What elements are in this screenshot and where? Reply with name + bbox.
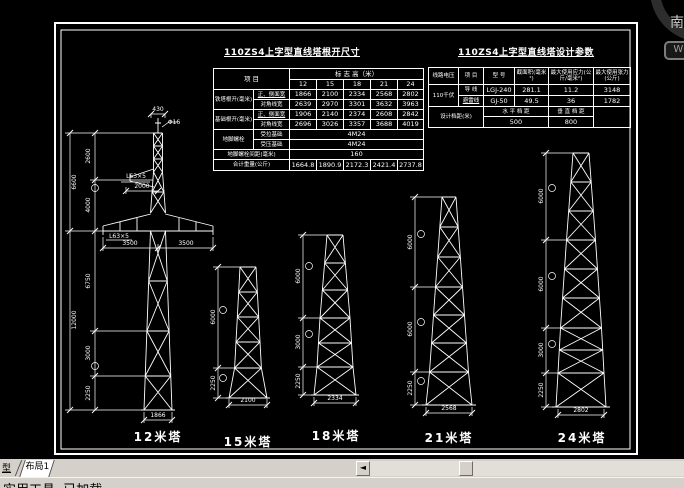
cell: 4M24 <box>290 140 424 150</box>
cell: 281.1 <box>515 85 549 96</box>
dim-label: 2802 <box>573 408 588 414</box>
cell: 2802 <box>398 90 424 100</box>
cell: 2696 <box>290 120 317 130</box>
dim-label: 1866 <box>150 413 165 419</box>
scrollbar-left-arrow-button[interactable]: ◄ <box>356 461 370 476</box>
command-line-area[interactable]: 实用工具. 已加载 <box>0 477 684 488</box>
tower-label-18m: 18米塔 <box>312 427 361 444</box>
cell: 110千伏 <box>429 85 459 107</box>
dim-label: 6000 <box>408 234 414 249</box>
dim-label: 6000 <box>539 188 545 203</box>
cell: 21 <box>371 80 398 90</box>
cell: 2568 <box>371 90 398 100</box>
dim-label: 6000 <box>408 321 414 336</box>
cell: 项 目 <box>459 68 484 85</box>
cell: 160 <box>290 150 424 160</box>
layout-tab-bar: 型 布局1 ◄ <box>0 459 684 477</box>
tower-21m <box>422 197 476 405</box>
cell: 15 <box>317 80 344 90</box>
viewcube-south-label[interactable]: 南 <box>670 12 684 32</box>
cell: 截面积(毫米²) <box>515 68 549 85</box>
dim-label: 6750 <box>86 273 92 288</box>
cell: 2172.3 <box>344 160 371 171</box>
dim-label: 6000 <box>296 268 302 283</box>
dim-label: 6000 <box>211 309 217 324</box>
tower-label-15m: 15米塔 <box>224 433 273 450</box>
tower-15m <box>226 267 270 398</box>
autocad-viewport: 110ZS4上字型直线塔根开尺寸 110ZS4上字型直线塔设计参数 项 目 标 … <box>0 0 684 488</box>
tower-21m-dim-lines <box>410 197 472 416</box>
dim-label: 3500 <box>178 241 193 247</box>
cell: GJ-50 <box>484 96 515 107</box>
cell: 3301 <box>344 100 371 110</box>
tower-12m <box>103 118 213 410</box>
horizontal-scrollbar-track[interactable] <box>370 461 684 476</box>
cell: 1890.9 <box>317 160 344 171</box>
cell: 对角线宽 <box>254 120 290 130</box>
dim-label: 4000 <box>86 197 92 212</box>
tower-24m <box>552 153 610 407</box>
cell: 2374 <box>344 110 371 120</box>
cell: 导 线 <box>459 85 484 96</box>
cell: 基础根开(毫米) <box>214 110 254 130</box>
cell: 24 <box>398 80 424 90</box>
tower-label-21m: 21米塔 <box>425 429 474 446</box>
cell: 11.2 <box>549 85 594 96</box>
cell: 3026 <box>317 120 344 130</box>
dim-label: 6000 <box>539 276 545 291</box>
cell: 受压基础 <box>254 140 290 150</box>
cell: 36 <box>549 96 594 107</box>
cell: 地脚螺栓 <box>214 130 254 150</box>
cell: 2100 <box>317 90 344 100</box>
cell: 避雷线 <box>459 96 484 107</box>
cell: 1906 <box>290 110 317 120</box>
cell: 线路电压 <box>429 68 459 85</box>
cell: 正、侧面宽 <box>254 110 290 120</box>
cell: 垂 直 档 距 <box>549 107 594 117</box>
cell: 地脚螺栓间距(毫米) <box>214 150 290 160</box>
dim-label: 3500 <box>122 241 137 247</box>
tower-label-24m: 24米塔 <box>558 429 607 446</box>
dim-label: Φ16 <box>168 120 180 126</box>
wcs-button[interactable]: WCS <box>664 41 684 60</box>
tab-model-partial[interactable]: 型 <box>2 461 11 474</box>
cell: 2737.8 <box>398 160 424 171</box>
dim-label: 12000 <box>72 310 78 329</box>
dim-label: 2100 <box>240 398 255 404</box>
dim-label: L63×5 <box>126 174 146 180</box>
root-opening-table-title: 110ZS4上字型直线塔根开尺寸 <box>224 45 360 58</box>
cell: 18 <box>344 80 371 90</box>
cell: 500 <box>484 117 549 128</box>
root-opening-table: 项 目 标 志 高（米） 12 15 18 21 24 铁塔根开(毫米) 正、侧… <box>213 68 424 171</box>
cell: 合计重量(公斤) <box>214 160 290 171</box>
cell: 4M24 <box>290 130 424 140</box>
dim-label: 6600 <box>72 174 78 189</box>
cell: 3148 <box>594 85 631 96</box>
cell: 对角线宽 <box>254 100 290 110</box>
cell: LGJ-240 <box>484 85 515 96</box>
dim-label: 3000 <box>539 342 545 357</box>
dim-label: 2250 <box>211 375 217 390</box>
cell: 水 平 档 距 <box>484 107 549 117</box>
cell: 3357 <box>344 120 371 130</box>
cell: 设计档距(米) <box>429 107 484 128</box>
cell: 1866 <box>290 90 317 100</box>
tab-layout1[interactable]: 布局1 <box>19 460 55 477</box>
dim-label: 2600 <box>86 148 92 163</box>
cell: 最大使用应力(公斤/毫米²) <box>549 68 594 85</box>
dim-label: 430 <box>152 107 163 113</box>
cell: 12 <box>290 80 317 90</box>
cell: 1664.8 <box>290 160 317 171</box>
cell: 型 号 <box>484 68 515 85</box>
cell: 最大使用张力(公斤) <box>594 68 631 85</box>
dim-label: 3000 <box>86 345 92 360</box>
dim-label: 2000 <box>134 184 149 190</box>
dim-label: 2250 <box>296 373 302 388</box>
design-parameter-table-title: 110ZS4上字型直线塔设计参数 <box>458 45 594 58</box>
left-arrow-icon: ◄ <box>360 463 366 472</box>
cell: 2970 <box>317 100 344 110</box>
tower-label-12m: 12米塔 <box>134 428 183 445</box>
cell <box>594 107 631 128</box>
cell: 3963 <box>398 100 424 110</box>
cell: 铁塔根开(毫米) <box>214 90 254 110</box>
dim-label: 3000 <box>296 334 302 349</box>
cell: 49.5 <box>515 96 549 107</box>
status-message: 实用工具. 已加载 <box>3 479 102 488</box>
dim-label: 2250 <box>539 382 545 397</box>
cell: 3688 <box>371 120 398 130</box>
height-header-cell: 标 志 高（米） <box>290 69 424 80</box>
dim-label: 2250 <box>86 385 92 400</box>
cell: 2608 <box>371 110 398 120</box>
cell: 1782 <box>594 96 631 107</box>
cell: 4019 <box>398 120 424 130</box>
cell: 受拉基础 <box>254 130 290 140</box>
cell: 2842 <box>398 110 424 120</box>
design-parameter-table: 线路电压 项 目 型 号 截面积(毫米²) 最大使用应力(公斤/毫米²) 最大使… <box>428 67 631 128</box>
cell: 800 <box>549 117 594 128</box>
cell: 2334 <box>344 90 371 100</box>
item-header-cell: 项 目 <box>214 69 290 90</box>
cell: 2140 <box>317 110 344 120</box>
horizontal-scrollbar-thumb[interactable] <box>459 461 473 476</box>
dim-label: 2250 <box>408 380 414 395</box>
cell: 3632 <box>371 100 398 110</box>
cell: 2421.4 <box>371 160 398 171</box>
tab-layout1-label: 布局1 <box>23 460 51 475</box>
dim-label: 2568 <box>441 406 456 412</box>
section-mark-circles <box>92 185 556 385</box>
tower-18m <box>311 235 359 395</box>
dim-label: 2334 <box>327 396 342 402</box>
cell: 正、侧面宽 <box>254 90 290 100</box>
tower-24m-dim-lines <box>541 153 604 418</box>
cell: 2639 <box>290 100 317 110</box>
